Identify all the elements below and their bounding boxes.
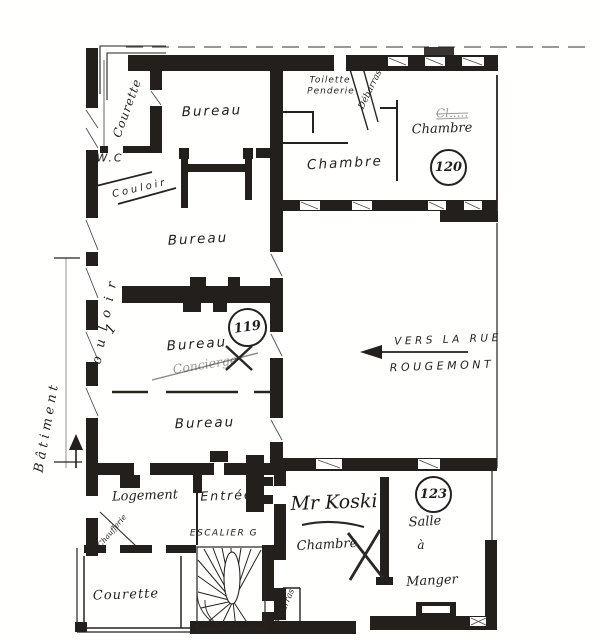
room-label-courette-bottom: Courette	[93, 587, 160, 602]
room-label-bureau-2: Bureau	[167, 232, 228, 249]
street-arrow-icon	[360, 345, 468, 359]
room-label-salle-line3: Manger	[406, 573, 458, 589]
spiral-staircase	[197, 547, 265, 629]
street-note-line2: ROUGEMONT	[390, 359, 495, 374]
room-label-salle-line2: à	[417, 539, 424, 551]
room-label-toilette-line2: Penderie	[307, 88, 355, 97]
room-label-entree: Entrée	[200, 489, 254, 503]
room-number-120: 120	[430, 149, 467, 186]
room-label-logement: Logement	[112, 488, 179, 503]
room-label-salle-line1: Salle	[408, 515, 441, 530]
tenant-underline	[302, 522, 364, 527]
room-number-123: 123	[415, 476, 452, 513]
floorplan-page: Courette W.C Couloir Couloir Bureau Toil…	[0, 0, 600, 640]
room-label-escalier: ESCALIER G	[190, 530, 258, 539]
room-label-bureau-4: Bureau	[175, 416, 236, 432]
annotation-scribble-120: Cl.....	[436, 106, 468, 119]
room-label-chambre-bottom: Chambre	[296, 537, 357, 553]
room-label-toilette-line1: Toilette	[309, 77, 350, 86]
north-arrow-icon	[69, 434, 83, 468]
room-label-bureau-top: Bureau	[182, 104, 243, 120]
room-label-chambre-120: Chambre	[411, 121, 472, 136]
annotation-tenant-name: Mr Koski	[290, 492, 378, 514]
room-label-wc: W.C	[96, 153, 123, 164]
